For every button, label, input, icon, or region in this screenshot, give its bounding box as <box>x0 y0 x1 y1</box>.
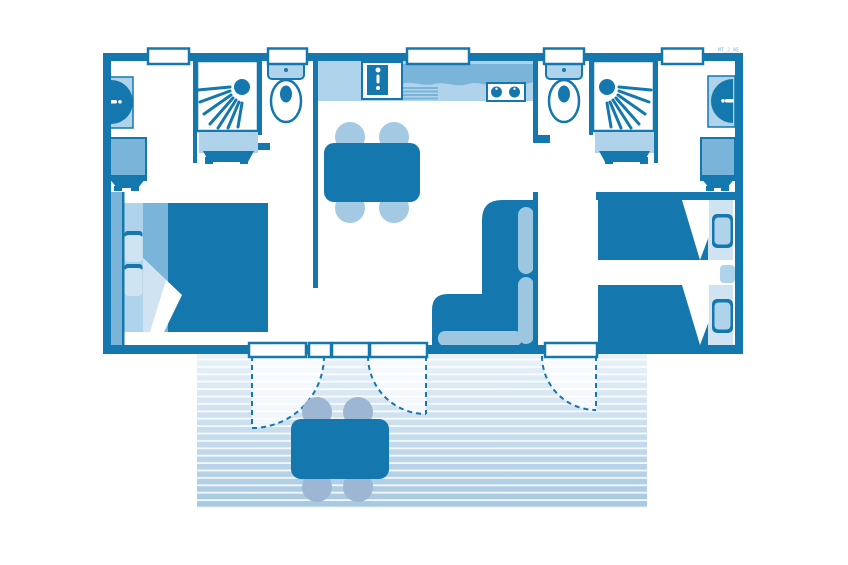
window-top-1 <box>148 49 189 65</box>
terrace-door-bedroom <box>249 343 306 357</box>
wall-living-right-lower <box>533 192 538 345</box>
shower-right <box>593 61 654 131</box>
terrace-window-panel <box>309 343 331 357</box>
pillow <box>125 231 143 262</box>
terrace-door-panel <box>332 343 369 357</box>
vanity-top <box>199 132 258 153</box>
wc-left <box>268 62 304 122</box>
floorplan-drawing: MT_2_WE <box>0 0 848 565</box>
wall-stub-wc-right <box>533 135 550 143</box>
shower-tray <box>593 61 654 131</box>
pillow <box>715 303 731 330</box>
toilet-bowl-drain <box>280 86 292 103</box>
basin-tap-dot <box>721 99 725 103</box>
wardrobe-foot <box>114 186 122 191</box>
outdoor-table-icon <box>291 419 389 479</box>
wall-shower-left-b <box>258 61 262 135</box>
vanity-foot <box>640 157 648 164</box>
sink-drain-dot <box>376 86 380 90</box>
shower-head-icon <box>234 79 250 95</box>
wall-shower-right-a <box>589 61 593 135</box>
burner-dot <box>513 88 515 90</box>
pillow <box>715 218 731 245</box>
shower-head-icon <box>599 79 615 95</box>
sofa-seat-cushion <box>438 331 522 346</box>
window-top-kitchen <box>407 49 469 65</box>
wardrobe-right <box>701 138 735 191</box>
vanity-left <box>199 132 258 164</box>
hob <box>487 83 525 101</box>
wc-right <box>546 62 582 122</box>
wardrobe-icon <box>109 138 146 180</box>
master-bedroom <box>111 192 268 345</box>
watermark-label: MT_2_WE <box>718 48 739 54</box>
floorplan-page: MT_2_WE <box>0 0 848 565</box>
vanity-top <box>595 132 654 153</box>
wall-stub-wc-left <box>258 143 270 150</box>
nightstand <box>720 265 735 283</box>
sofa-back-cushion <box>518 207 534 274</box>
sink-tap-body <box>377 75 380 84</box>
basin-tap-icon <box>725 99 734 103</box>
single-bed-top <box>598 200 733 260</box>
terrace-deck <box>197 353 647 508</box>
terrace-door-living <box>370 343 427 357</box>
wall-left <box>103 53 111 354</box>
shower-left <box>197 61 258 131</box>
dining-table-icon <box>324 143 420 202</box>
window-top-4 <box>544 49 584 65</box>
toilet-flush-button <box>284 68 288 72</box>
wardrobe-strip-front <box>122 192 125 345</box>
vanity-foot <box>605 157 613 164</box>
vanity-foot <box>205 157 213 164</box>
pillow <box>125 264 143 296</box>
terrace-door-right <box>545 343 597 357</box>
wall-shower-right-b <box>654 61 658 163</box>
wardrobe-foot <box>706 186 714 191</box>
wardrobe-foot <box>721 186 729 191</box>
wall-living-right-upper <box>533 61 538 143</box>
window-top-2 <box>268 49 307 65</box>
window-top-5 <box>662 49 703 65</box>
toilet-flush-button <box>562 68 566 72</box>
sink-tap-icon <box>376 68 381 73</box>
burner-dot <box>495 88 497 90</box>
vanity-foot <box>240 157 248 164</box>
wardrobe-icon <box>701 138 735 180</box>
kitchen-sink <box>362 62 402 99</box>
kitchen <box>318 61 533 101</box>
vanity-right <box>595 132 654 164</box>
wall-right <box>735 53 743 354</box>
wall-twin-bedroom <box>596 192 743 200</box>
wall-shower-left-a <box>193 61 197 163</box>
wardrobe-strip <box>111 192 123 345</box>
wardrobe-left <box>109 138 146 191</box>
double-bed-icon <box>168 203 268 332</box>
single-bed-bottom <box>598 285 733 345</box>
wardrobe-foot <box>131 186 139 191</box>
toilet-bowl-drain <box>558 86 570 103</box>
wall-kitchen-left <box>313 61 318 288</box>
basin-tap-dot <box>118 100 122 104</box>
